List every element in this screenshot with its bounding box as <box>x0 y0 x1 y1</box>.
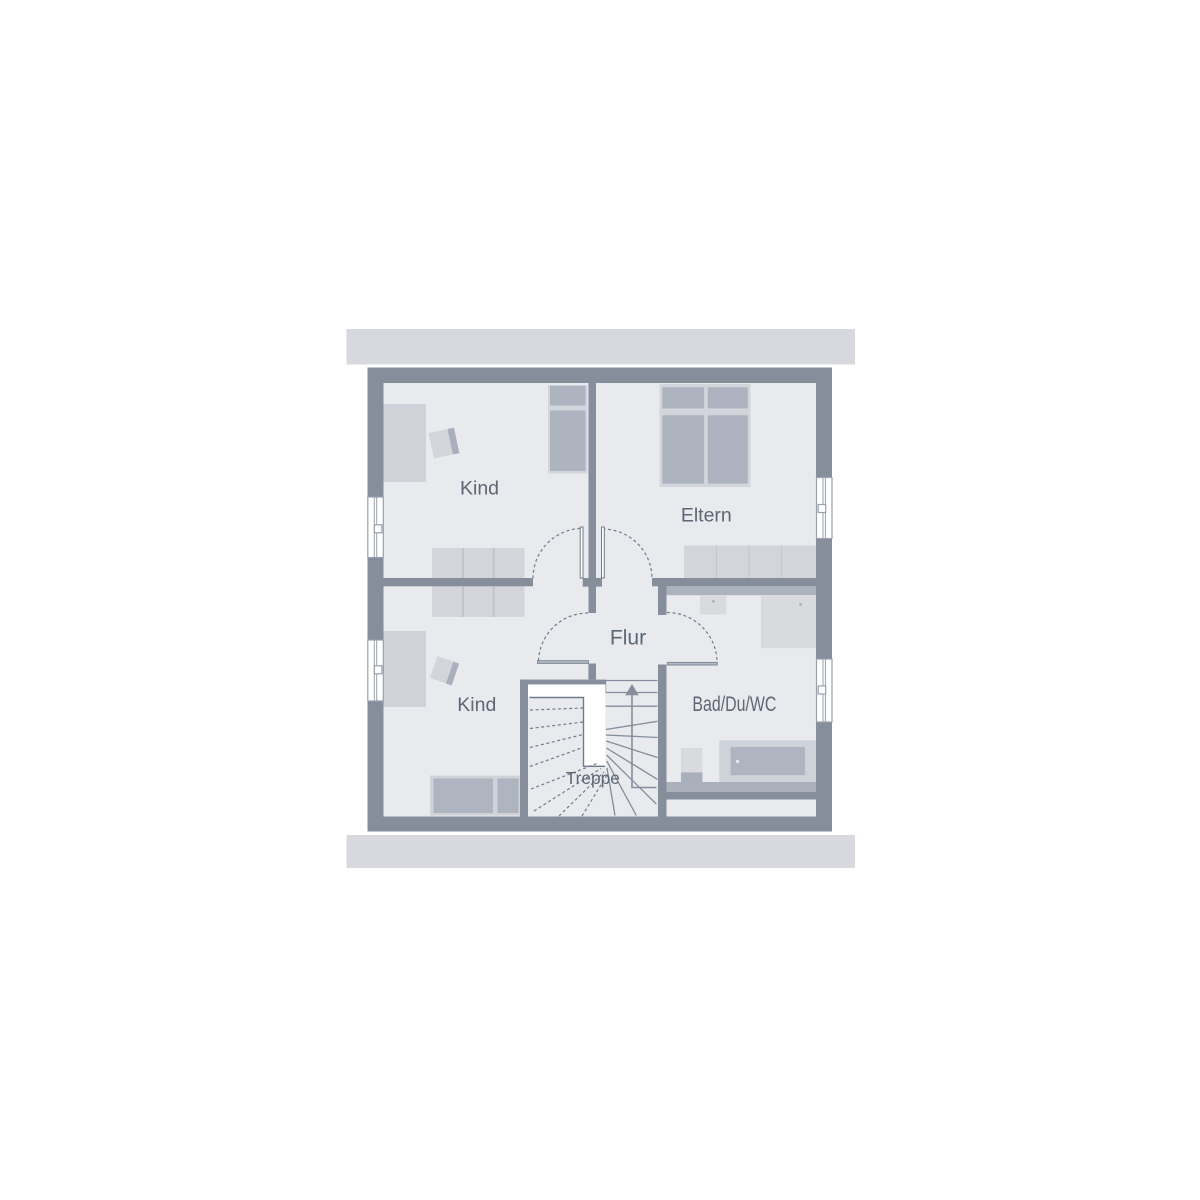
svg-text:Flur: Flur <box>610 627 646 650</box>
svg-text:Kind: Kind <box>460 478 499 500</box>
svg-text:Treppe: Treppe <box>566 768 620 788</box>
svg-text:Eltern: Eltern <box>681 504 732 526</box>
svg-text:Bad/Du/WC: Bad/Du/WC <box>692 693 776 716</box>
svg-text:Kind: Kind <box>457 694 496 716</box>
